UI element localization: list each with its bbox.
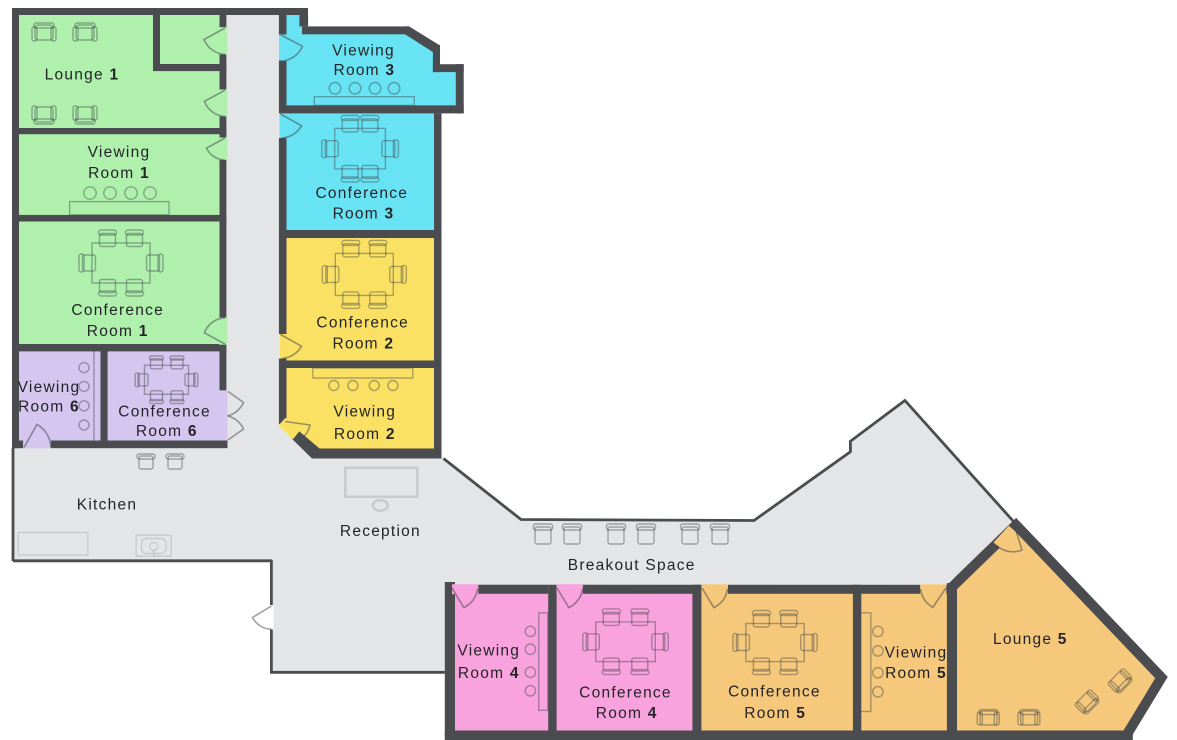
svg-text:Reception: Reception [340,523,421,540]
svg-text:Room 6: Room 6 [136,423,198,440]
svg-text:Viewing: Viewing [18,379,81,396]
svg-text:Room 2: Room 2 [333,336,395,353]
svg-text:Room 3: Room 3 [333,205,395,222]
svg-text:Room 2: Room 2 [334,426,396,443]
svg-text:Conference: Conference [315,185,408,202]
svg-text:Viewing: Viewing [332,43,395,60]
svg-text:Conference: Conference [316,315,409,332]
svg-text:Viewing: Viewing [885,645,948,662]
svg-text:Viewing: Viewing [88,144,151,161]
svg-text:Lounge 5: Lounge 5 [993,631,1068,648]
svg-text:Room 4: Room 4 [458,665,520,682]
svg-text:Lounge 1: Lounge 1 [45,67,120,84]
svg-text:Conference: Conference [728,683,821,700]
svg-text:Kitchen: Kitchen [77,497,137,514]
svg-text:Room 5: Room 5 [885,665,947,682]
svg-text:Viewing: Viewing [457,643,520,660]
svg-text:Conference: Conference [71,302,164,319]
svg-text:Room 3: Room 3 [334,62,396,79]
svg-text:Viewing: Viewing [333,404,396,421]
svg-text:Conference: Conference [579,684,672,701]
svg-text:Room 5: Room 5 [744,705,806,722]
svg-text:Room 1: Room 1 [87,323,149,340]
svg-text:Breakout Space: Breakout Space [568,557,696,574]
svg-text:Room 4: Room 4 [596,705,658,722]
svg-text:Room 6: Room 6 [18,399,80,416]
svg-text:Room 1: Room 1 [88,165,150,182]
svg-text:Conference: Conference [118,404,211,421]
